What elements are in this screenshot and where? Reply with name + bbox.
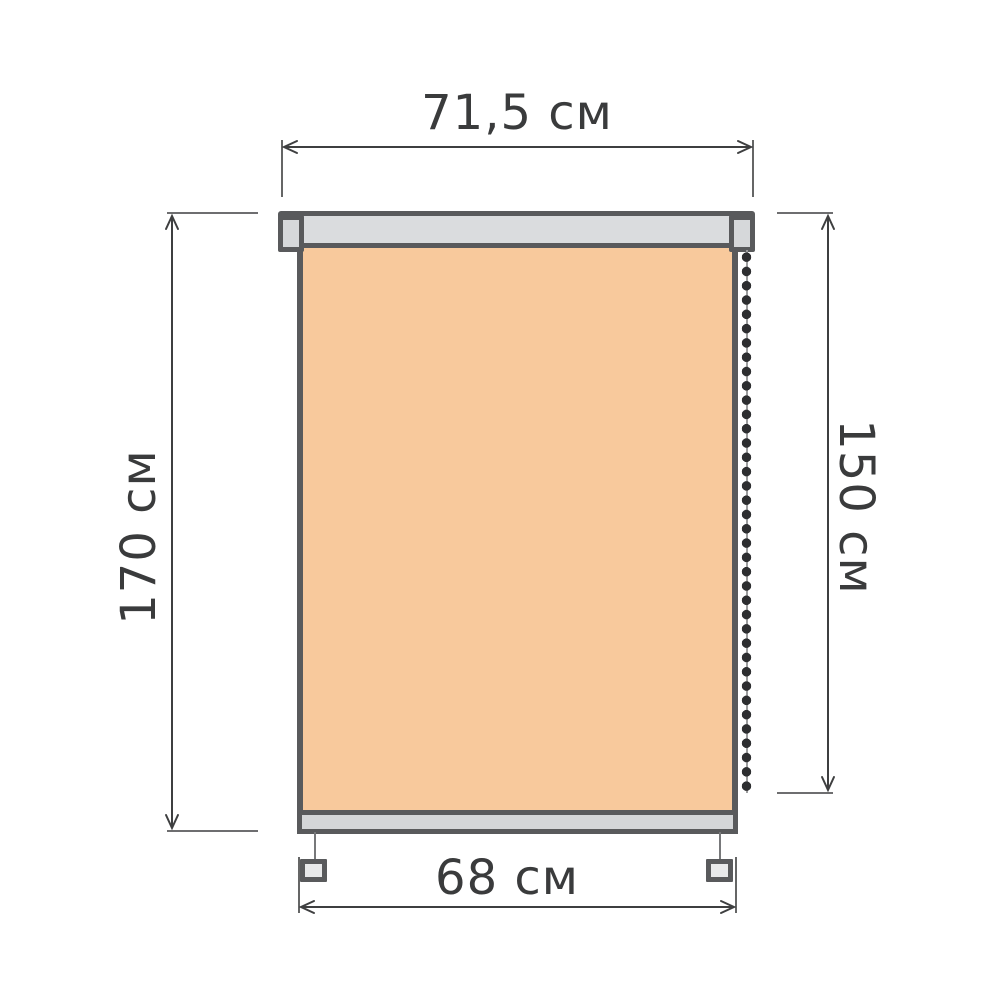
dimension-right-height [777,213,834,793]
roller-blind-diagram: 71,5 см 170 см 150 см 68 см [0,0,1000,1000]
dimension-label-left-height: 170 см [111,449,167,624]
dimension-top-width [282,140,753,197]
dimension-label-bottom-width: 68 см [435,850,579,906]
dimension-label-right-height: 150 см [828,419,884,594]
dimension-label-top-width: 71,5 см [421,85,613,141]
dimension-left-height [166,213,258,831]
